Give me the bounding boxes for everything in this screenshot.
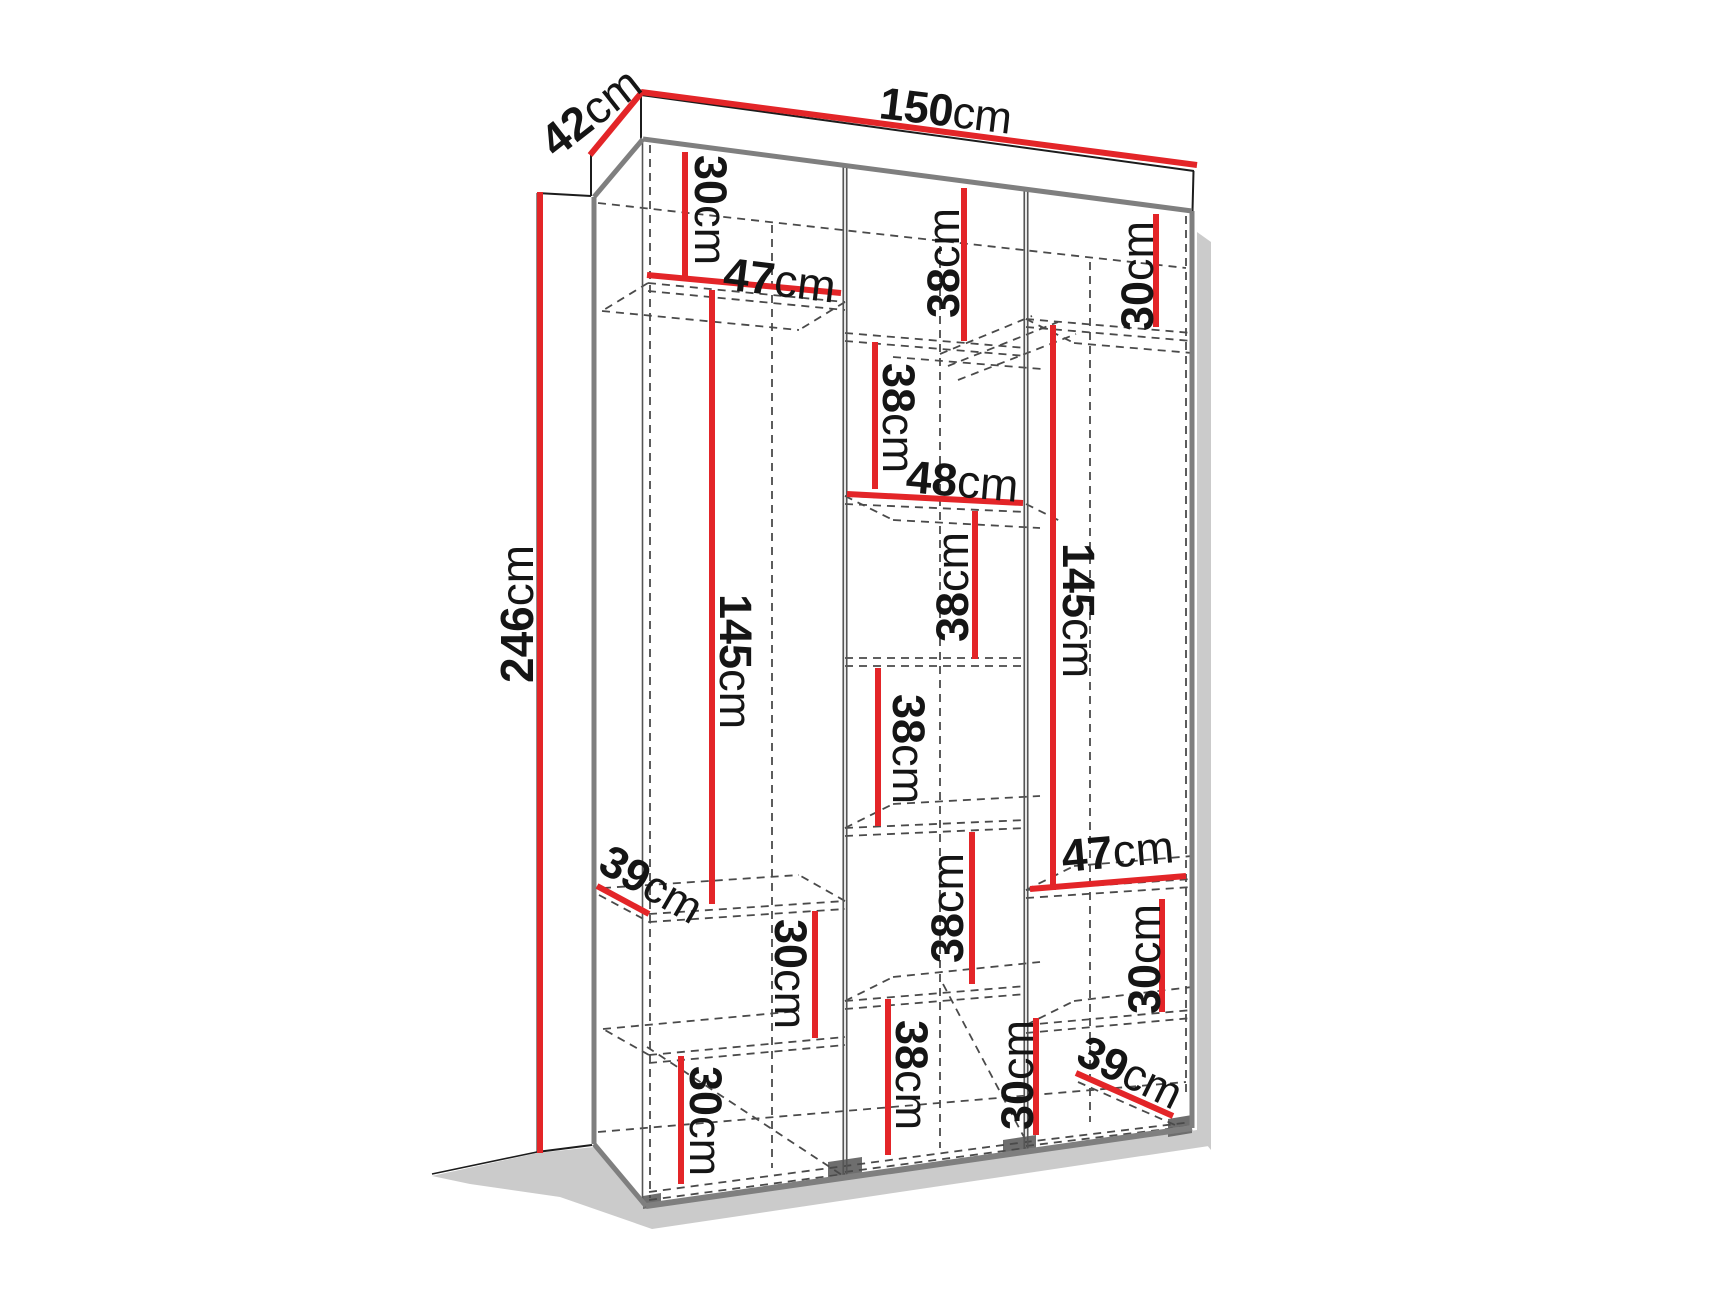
svg-text:38cm: 38cm	[922, 853, 973, 963]
svg-text:145cm: 145cm	[710, 594, 761, 729]
svg-text:38cm: 38cm	[918, 208, 969, 318]
svg-text:30cm: 30cm	[765, 919, 816, 1029]
svg-text:246cm: 246cm	[491, 545, 543, 683]
svg-text:30cm: 30cm	[992, 1020, 1043, 1130]
svg-text:30cm: 30cm	[680, 1066, 731, 1176]
svg-text:38cm: 38cm	[927, 532, 978, 642]
svg-text:38cm: 38cm	[883, 694, 934, 804]
svg-text:38cm: 38cm	[886, 1020, 937, 1130]
svg-text:48cm: 48cm	[904, 450, 1021, 512]
svg-text:47cm: 47cm	[1059, 820, 1176, 882]
svg-text:145cm: 145cm	[1053, 543, 1104, 678]
svg-text:30cm: 30cm	[1119, 904, 1170, 1014]
svg-text:30cm: 30cm	[1112, 221, 1163, 331]
